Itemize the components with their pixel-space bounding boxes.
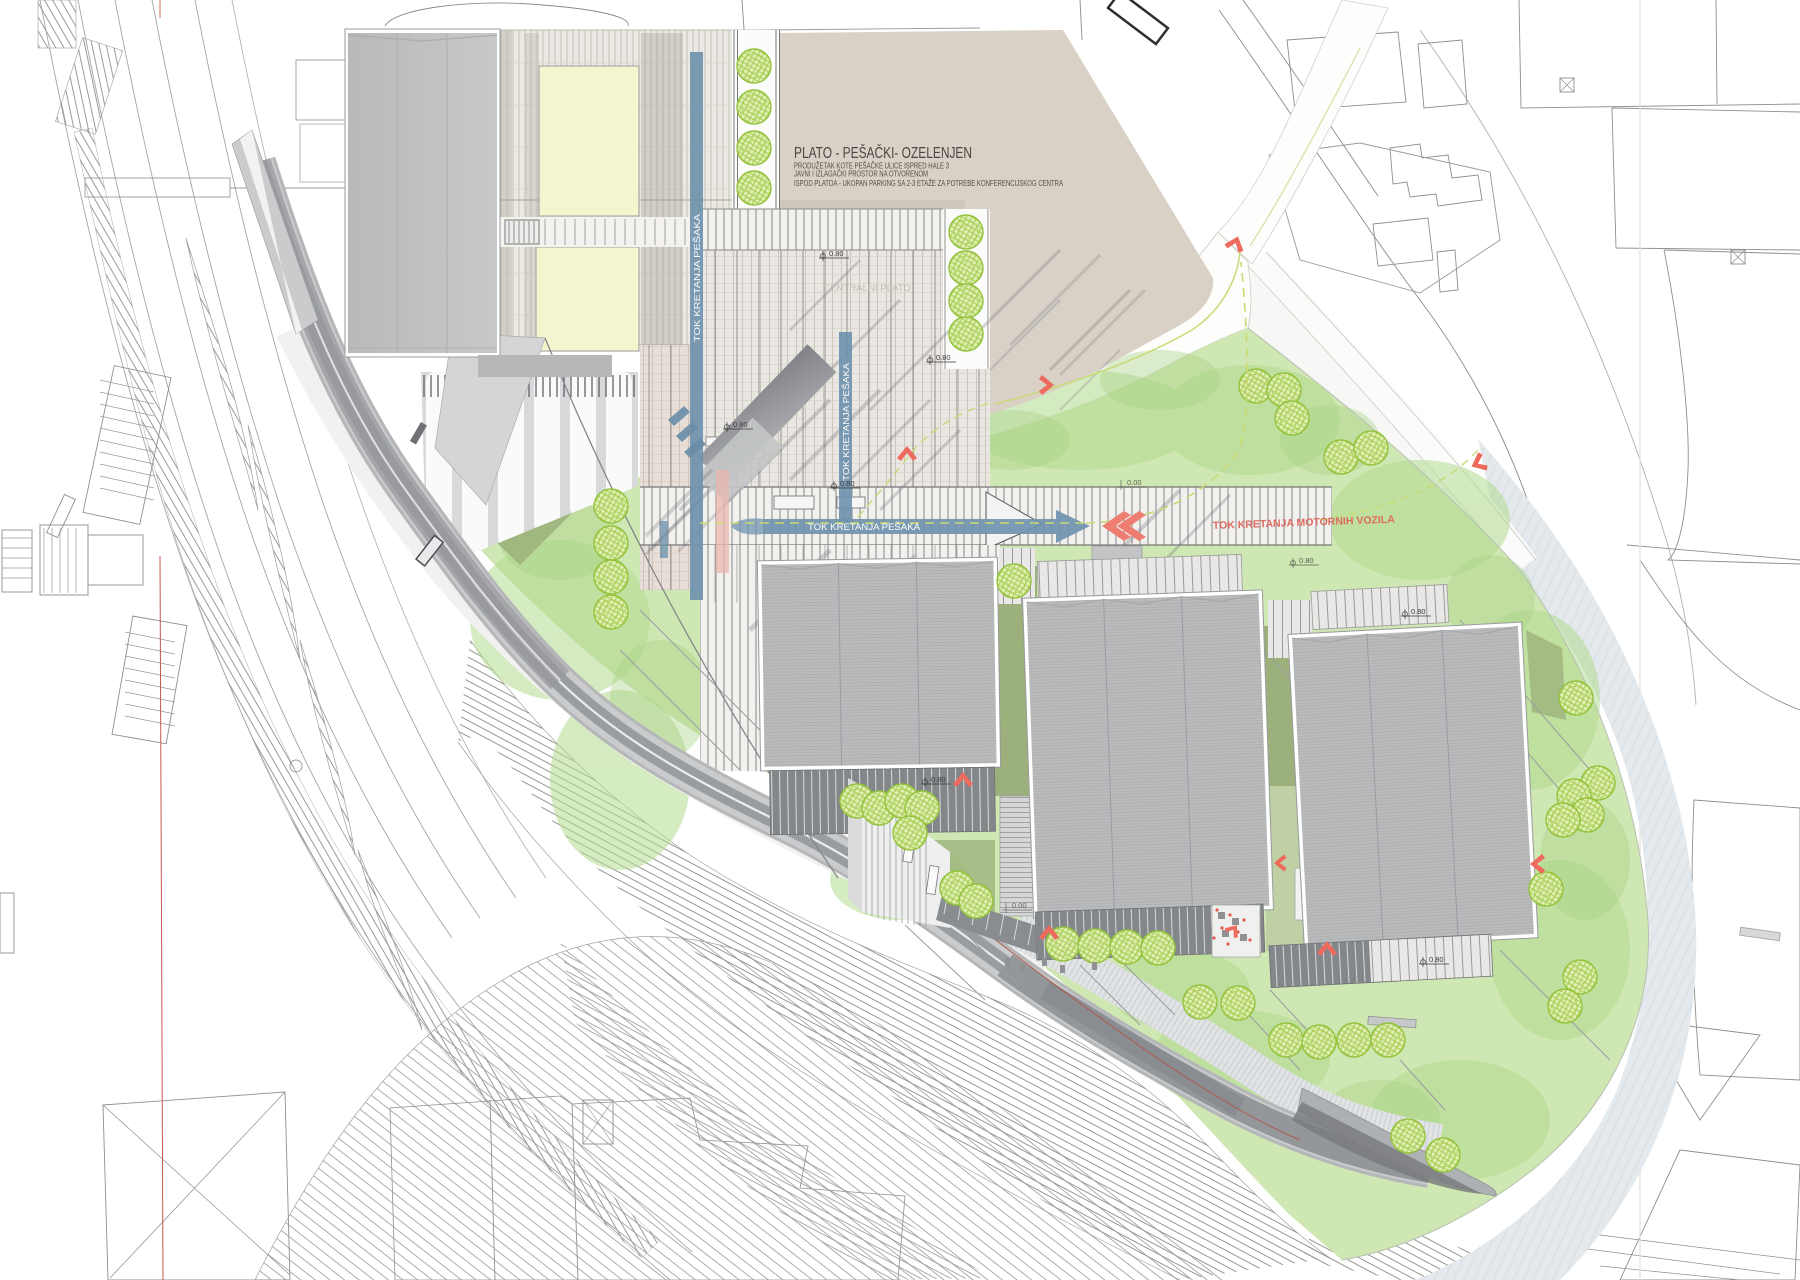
svg-text:0.00: 0.00 [1127, 478, 1142, 487]
svg-text:PLATO - PEŠAČKI- OZELENJEN: PLATO - PEŠAČKI- OZELENJEN [794, 145, 972, 162]
svg-text:0.00: 0.00 [1012, 901, 1027, 910]
svg-text:TOK KRETANJA PEŠAKA: TOK KRETANJA PEŠAKA [692, 213, 702, 342]
svg-text:0.80: 0.80 [829, 249, 844, 258]
svg-text:CENTRALNI PLATO: CENTRALNI PLATO [823, 283, 911, 294]
svg-text:TOK KRETANJA PEŠAKA: TOK KRETANJA PEŠAKA [841, 362, 851, 481]
svg-text:TOK KRETANJA PEŠAKA: TOK KRETANJA PEŠAKA [808, 522, 921, 533]
svg-text:JAVNI I IZLAGAČKI PROSTOR NA O: JAVNI I IZLAGAČKI PROSTOR NA OTVORENOM [794, 170, 928, 179]
svg-text:0.80: 0.80 [1299, 556, 1314, 565]
svg-text:0.80: 0.80 [931, 775, 946, 784]
svg-text:0.80: 0.80 [936, 353, 951, 362]
svg-text:ISPOD PLATOA - UKOPAN PARKING: ISPOD PLATOA - UKOPAN PARKING SA 2-3 ETA… [794, 179, 1063, 188]
svg-text:0.80: 0.80 [1429, 955, 1444, 964]
svg-text:0.80: 0.80 [840, 479, 855, 488]
svg-text:0.80: 0.80 [733, 420, 748, 429]
svg-text:0.80: 0.80 [1411, 607, 1426, 616]
